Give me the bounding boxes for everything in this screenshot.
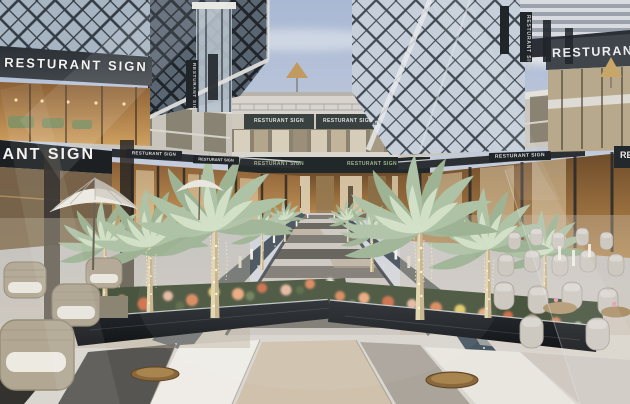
sign-canopy-left-2: RESTURANT SIGN: [193, 155, 239, 165]
sign-far-fascia-right: RESTURANT SIGN: [341, 162, 403, 167]
sign-right-band: RESTURANT SIGN: [334, 122, 380, 126]
sign-left-mid: RESTURANT SIGN: [0, 144, 100, 168]
sign-blade-right: RESTURANT SIGN: [525, 15, 530, 71]
sign-blade-left: RESTURANT SIGN: [192, 63, 197, 114]
sign-far-upper-left: RESTURANT SIGN: [248, 119, 310, 124]
sign-top-right: RESTURANT SIGN: [552, 43, 630, 60]
mall-courtyard-render: RESTURANT SIGN RESTURANT SIGN RESTURANT …: [0, 0, 630, 404]
sign-right-edge: RESTURANT SIGN: [620, 151, 630, 160]
sign-far-fascia-left: RESTURANT SIGN: [247, 162, 311, 167]
